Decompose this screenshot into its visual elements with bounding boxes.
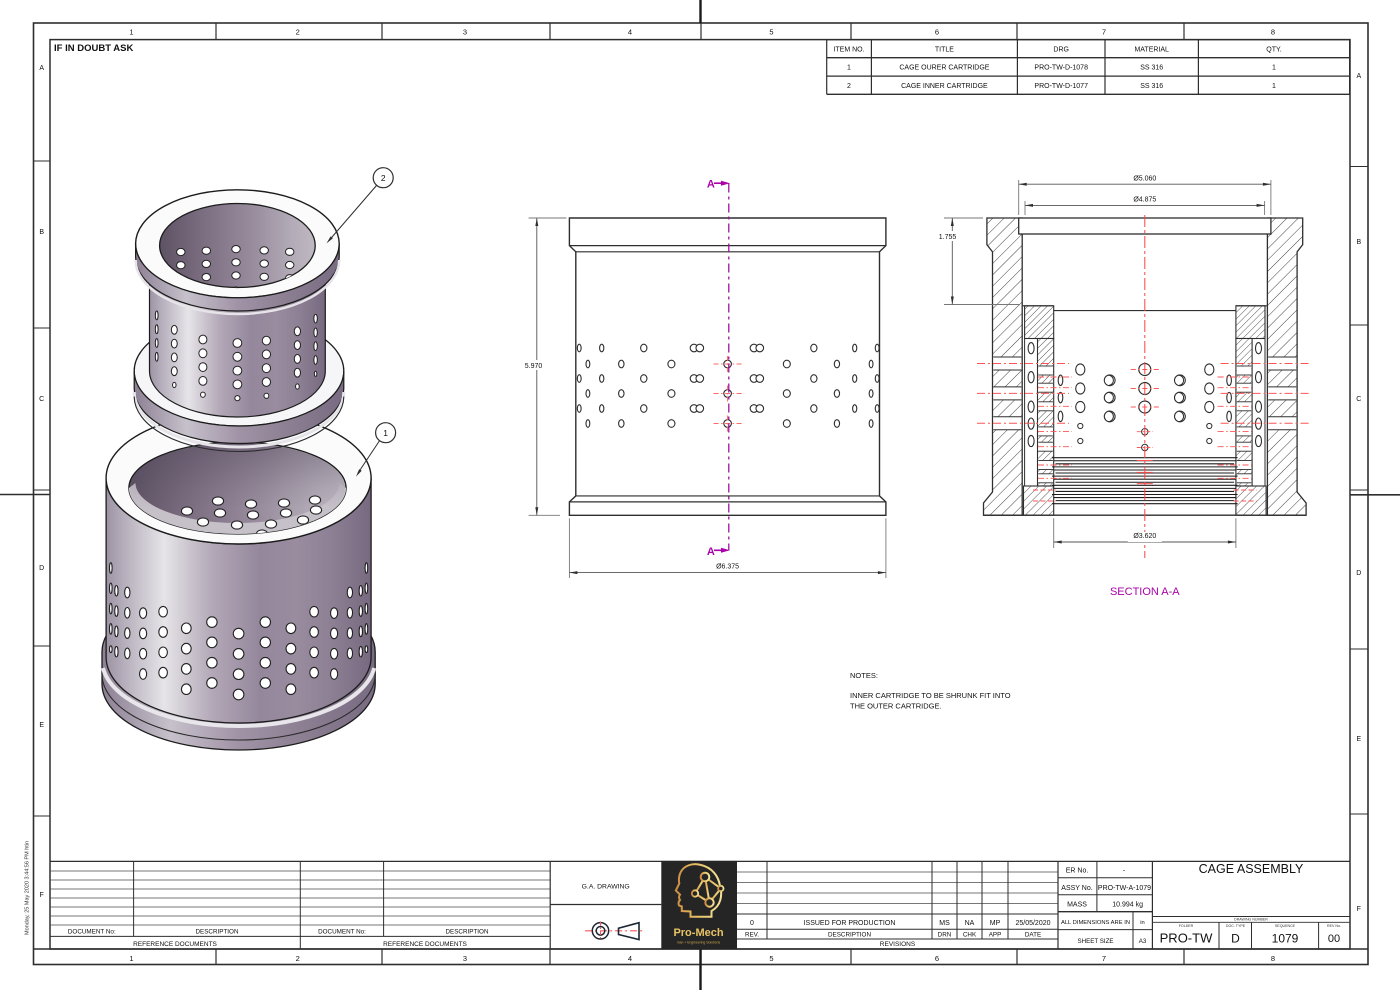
svg-text:8: 8 [1271,954,1275,963]
svg-text:A3: A3 [1139,938,1147,945]
svg-text:6: 6 [935,28,939,37]
svg-text:SEQUENCE: SEQUENCE [1275,924,1296,928]
svg-text:C: C [1356,396,1361,403]
svg-text:man + Engineering Solutions: man + Engineering Solutions [677,941,721,945]
svg-text:5: 5 [769,954,773,963]
svg-text:REV No.: REV No. [1327,924,1341,928]
svg-text:DOCUMENT No:: DOCUMENT No: [318,928,366,935]
svg-text:APP: APP [989,932,1002,939]
svg-text:ISSUED FOR PRODUCTION: ISSUED FOR PRODUCTION [804,920,896,927]
svg-text:7: 7 [1102,28,1106,37]
svg-text:THE OUTER CARTRIDGE.: THE OUTER CARTRIDGE. [850,702,942,711]
svg-text:SS 316: SS 316 [1140,65,1163,72]
svg-text:1: 1 [129,28,133,37]
svg-text:DOC. TYPE: DOC. TYPE [1226,924,1246,928]
svg-text:D: D [1356,570,1361,577]
svg-text:1: 1 [847,65,851,72]
svg-text:B: B [1356,239,1361,246]
svg-text:2: 2 [847,83,851,90]
svg-text:DRAWING NUMBER: DRAWING NUMBER [1234,918,1268,922]
svg-text:ASSY No.: ASSY No. [1061,885,1092,892]
svg-text:F: F [1357,906,1361,913]
svg-text:E: E [1356,736,1361,743]
svg-text:4: 4 [628,28,632,37]
svg-text:Ø6.375: Ø6.375 [716,564,739,571]
svg-text:1: 1 [1272,65,1276,72]
svg-text:DESCRIPTION: DESCRIPTION [828,932,871,939]
svg-text:ALL DIMENSIONS ARE IN: ALL DIMENSIONS ARE IN [1061,920,1130,926]
svg-text:NOTES:: NOTES: [850,671,878,680]
svg-text:6: 6 [935,954,939,963]
svg-text:DATE: DATE [1025,932,1041,939]
svg-text:QTY.: QTY. [1266,47,1281,54]
svg-text:G.A. DRAWING: G.A. DRAWING [582,884,630,891]
svg-text:ITEM NO.: ITEM NO. [833,47,864,54]
svg-text:IF IN DOUBT ASK: IF IN DOUBT ASK [54,43,133,54]
svg-text:4: 4 [628,954,632,963]
svg-text:SS 316: SS 316 [1140,83,1163,90]
svg-text:2: 2 [296,954,300,963]
svg-text:SECTION A-A: SECTION A-A [1110,586,1180,598]
svg-text:B: B [39,229,44,236]
svg-text:3: 3 [463,954,467,963]
svg-text:TITLE: TITLE [935,47,954,54]
svg-text:A: A [39,65,44,72]
svg-text:PRO-TW-D-1077: PRO-TW-D-1077 [1034,83,1088,90]
svg-text:DRG: DRG [1053,47,1069,54]
svg-text:REFERENCE DOCUMENTS: REFERENCE DOCUMENTS [383,941,467,948]
svg-text:MS: MS [939,920,950,927]
svg-text:F: F [40,892,44,899]
svg-text:Pro-Mech: Pro-Mech [673,927,723,939]
svg-text:in: in [1140,920,1145,926]
svg-text:CHK: CHK [963,932,977,939]
svg-text:INNER CARTRIDGE TO BE SHRUNK F: INNER CARTRIDGE TO BE SHRUNK FIT INTO [850,691,1011,700]
svg-text:E: E [39,722,44,729]
svg-text:DESCRIPTION: DESCRIPTION [195,928,238,935]
svg-text:DOCUMENT No:: DOCUMENT No: [68,928,116,935]
svg-text:CAGE INNER CARTRIDGE: CAGE INNER CARTRIDGE [901,83,988,90]
svg-text:1.755: 1.755 [939,234,957,241]
svg-text:7: 7 [1102,954,1106,963]
svg-text:8: 8 [1271,28,1275,37]
svg-text:2: 2 [381,173,386,183]
svg-text:MASS: MASS [1067,902,1087,909]
svg-text:PRO-TW-D-1078: PRO-TW-D-1078 [1034,65,1088,72]
svg-text:Ø3.620: Ø3.620 [1133,533,1156,540]
svg-text:MATERIAL: MATERIAL [1134,47,1169,54]
svg-text:5.970: 5.970 [525,363,543,370]
svg-text:2: 2 [296,28,300,37]
svg-text:DRN: DRN [938,932,952,939]
svg-text:NA: NA [965,920,975,927]
svg-text:DESCRIPTION: DESCRIPTION [445,928,488,935]
svg-text:SHEET SIZE: SHEET SIZE [1078,938,1114,945]
svg-text:MP: MP [990,920,1001,927]
svg-text:FOLDER: FOLDER [1179,924,1194,928]
svg-text:1079: 1079 [1272,932,1299,946]
svg-text:PRO-TW-A-1079: PRO-TW-A-1079 [1098,885,1151,892]
svg-text:10.994 kg: 10.994 kg [1112,902,1143,909]
svg-text:D: D [1231,932,1240,946]
svg-text:D: D [39,565,44,572]
svg-text:A: A [1356,73,1361,80]
svg-text:CAGE ASSEMBLY: CAGE ASSEMBLY [1199,862,1304,876]
svg-text:REFERENCE DOCUMENTS: REFERENCE DOCUMENTS [133,941,217,948]
svg-text:A: A [707,179,715,191]
svg-text:Ø5.060: Ø5.060 [1133,176,1156,183]
svg-text:C: C [39,396,44,403]
svg-text:1: 1 [1272,83,1276,90]
svg-text:1: 1 [383,428,388,438]
svg-text:CAGE OURER CARTRIDGE: CAGE OURER CARTRIDGE [899,65,989,72]
svg-text:0: 0 [750,920,754,927]
svg-text:25/05/2020: 25/05/2020 [1015,920,1050,927]
svg-text:5: 5 [769,28,773,37]
svg-text:REVISIONS: REVISIONS [880,941,916,948]
svg-text:3: 3 [463,28,467,37]
svg-text:PRO-TW: PRO-TW [1160,931,1213,946]
svg-text:Ø4.875: Ø4.875 [1133,197,1156,204]
svg-text:REV.: REV. [745,932,759,939]
svg-text:ER No.: ER No. [1066,868,1089,875]
svg-text:00: 00 [1328,933,1340,945]
svg-text:Monday, 25 May 2020 3:44:56 PM: Monday, 25 May 2020 3:44:56 PM htin [25,841,31,935]
svg-text:1: 1 [129,954,133,963]
svg-text:A: A [707,546,715,558]
